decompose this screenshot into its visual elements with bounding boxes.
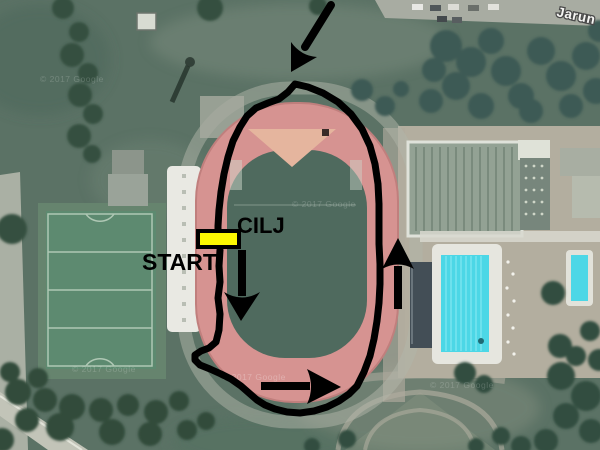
parked-car bbox=[412, 4, 423, 10]
lounger bbox=[506, 260, 509, 263]
window-dot bbox=[525, 165, 528, 168]
pool-mark bbox=[478, 338, 484, 344]
tree bbox=[571, 381, 600, 411]
service-building bbox=[112, 150, 144, 176]
tree bbox=[442, 72, 470, 100]
tree bbox=[69, 22, 89, 42]
window-dot bbox=[541, 177, 544, 180]
right-edge-building bbox=[572, 176, 600, 218]
start-finish-marker bbox=[198, 231, 239, 247]
parked-car bbox=[430, 5, 441, 11]
window-dot bbox=[533, 213, 536, 216]
tree bbox=[572, 42, 600, 70]
tree bbox=[468, 93, 494, 119]
lounger bbox=[506, 340, 509, 343]
parked-car bbox=[437, 16, 447, 22]
main-pool-water bbox=[441, 255, 489, 352]
window-dot bbox=[533, 189, 536, 192]
tree bbox=[519, 99, 543, 123]
pole-shadow-head bbox=[185, 57, 195, 67]
tree bbox=[393, 81, 409, 97]
changing-building bbox=[410, 262, 434, 348]
tree bbox=[33, 388, 57, 412]
walkway bbox=[420, 231, 600, 242]
tree bbox=[197, 412, 215, 430]
satellite-map: © 2017 Google © 2017 Google © 2017 Googl… bbox=[0, 0, 600, 450]
tree bbox=[548, 334, 572, 358]
window-dot bbox=[533, 201, 536, 204]
tree bbox=[68, 83, 92, 107]
tree bbox=[46, 413, 74, 441]
tree bbox=[117, 394, 139, 416]
small-pool-water bbox=[571, 255, 588, 301]
parked-car bbox=[452, 17, 462, 23]
parked-car bbox=[448, 4, 459, 10]
tree bbox=[144, 400, 168, 424]
tree bbox=[553, 403, 579, 429]
track-infield bbox=[227, 150, 367, 358]
window-dot bbox=[525, 189, 528, 192]
tree bbox=[99, 419, 125, 445]
parked-car bbox=[468, 5, 479, 11]
tree bbox=[491, 56, 521, 86]
window-dot bbox=[541, 189, 544, 192]
tree bbox=[15, 408, 39, 432]
tree bbox=[28, 368, 48, 388]
tree bbox=[541, 281, 565, 305]
service-building bbox=[108, 174, 148, 206]
tree bbox=[138, 422, 162, 446]
parked-car bbox=[488, 4, 499, 10]
tree bbox=[351, 79, 373, 101]
tree bbox=[580, 321, 600, 341]
tree bbox=[492, 427, 510, 445]
lounger bbox=[511, 272, 514, 275]
jump-pit bbox=[230, 160, 242, 190]
tree bbox=[83, 104, 103, 124]
sports-hall bbox=[408, 142, 522, 236]
tree bbox=[422, 58, 446, 82]
tree bbox=[338, 430, 356, 448]
tree bbox=[5, 379, 31, 405]
watermark-text: © 2017 Google bbox=[72, 364, 136, 374]
window-dot bbox=[541, 213, 544, 216]
tree bbox=[546, 61, 576, 91]
tree bbox=[177, 420, 197, 440]
window-dot bbox=[541, 201, 544, 204]
window-dot bbox=[533, 165, 536, 168]
map-canvas: © 2017 Google © 2017 Google © 2017 Googl… bbox=[0, 0, 600, 450]
tree bbox=[60, 43, 84, 67]
track-equipment bbox=[322, 129, 329, 136]
lounger bbox=[511, 326, 514, 329]
window-dot bbox=[533, 177, 536, 180]
tree bbox=[169, 391, 189, 411]
lounger bbox=[505, 286, 508, 289]
lounger bbox=[512, 299, 515, 302]
right-edge-building bbox=[560, 148, 600, 176]
watermark-text: © 2017 Google bbox=[430, 380, 494, 390]
tree bbox=[89, 398, 113, 422]
utility-hut bbox=[137, 13, 156, 30]
tree bbox=[67, 124, 91, 148]
hall-annex bbox=[520, 158, 550, 230]
finish-label: CILJ bbox=[237, 213, 285, 238]
tree bbox=[547, 362, 575, 390]
tree bbox=[527, 37, 555, 65]
tree bbox=[0, 362, 20, 382]
lounger bbox=[506, 313, 509, 316]
tree bbox=[375, 96, 395, 116]
tree bbox=[559, 94, 583, 118]
window-dot bbox=[525, 201, 528, 204]
window-dot bbox=[525, 213, 528, 216]
tree bbox=[456, 47, 486, 77]
window-dot bbox=[525, 177, 528, 180]
tree bbox=[419, 89, 443, 113]
tree bbox=[478, 28, 504, 54]
start-label: START bbox=[142, 249, 217, 275]
tree bbox=[83, 145, 101, 163]
hall-annex-roof bbox=[518, 140, 550, 160]
window-dot bbox=[541, 165, 544, 168]
jump-pit bbox=[350, 160, 362, 190]
watermark-text: © 2017 Google bbox=[40, 74, 104, 84]
lounger bbox=[512, 352, 515, 355]
watermark-text: © 2017 Google bbox=[292, 199, 356, 209]
